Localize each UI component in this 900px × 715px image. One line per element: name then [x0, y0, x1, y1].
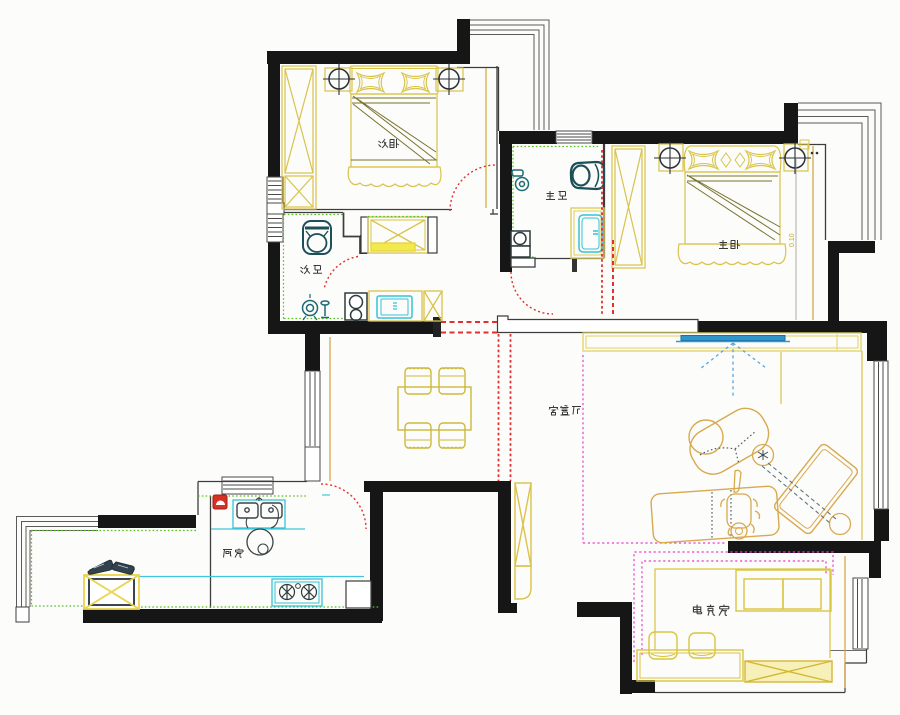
- svg-text:0.10: 0.10: [789, 233, 796, 247]
